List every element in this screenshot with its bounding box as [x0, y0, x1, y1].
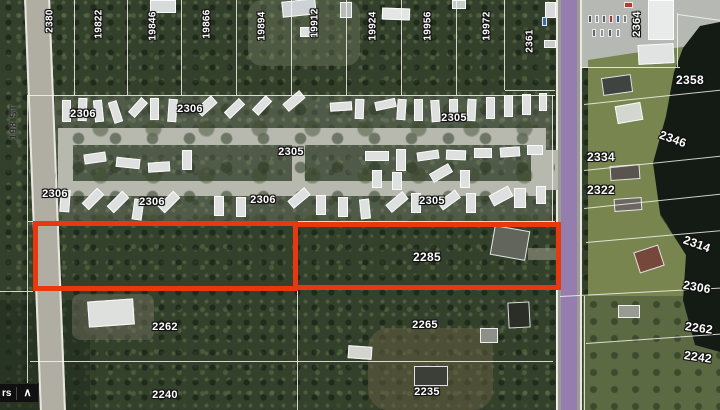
building-footprint [602, 15, 606, 23]
building-footprint [623, 15, 627, 23]
ui-divider [16, 387, 17, 400]
parcel-boundary-line [28, 95, 555, 96]
parcel-label: 2262 [152, 321, 178, 333]
building-footprint [480, 328, 498, 343]
parcel-label: 19924 [368, 11, 379, 40]
parcel-label: 2235 [414, 386, 440, 398]
parcel-label: 2305 [278, 146, 304, 158]
parcel-label: 19972 [482, 11, 493, 40]
parcel-label: 2265 [412, 319, 438, 331]
building-footprint [348, 345, 373, 360]
building-footprint [544, 40, 556, 48]
parcel-label: 19894 [257, 11, 268, 40]
building-footprint [87, 298, 135, 327]
building-footprint [148, 161, 171, 173]
building-footprint [545, 2, 556, 18]
parcel-label: 19846 [148, 11, 159, 40]
building-footprint [338, 197, 348, 217]
building-footprint [600, 29, 604, 37]
building-footprint [592, 29, 596, 37]
building-footprint [236, 197, 246, 217]
parcel-boundary-line [401, 0, 402, 95]
parcel-boundary-line [346, 0, 347, 95]
layers-bar: rs ∧ [0, 383, 39, 402]
parcel-label: 2306 [139, 196, 165, 208]
parcel-boundary-line [0, 291, 33, 292]
building-footprint [648, 0, 674, 40]
building-footprint [214, 196, 224, 216]
parcel-boundary-line [552, 95, 553, 222]
building-footprint [446, 150, 466, 161]
parcel-boundary-line [291, 0, 292, 95]
building-footprint [392, 172, 402, 190]
chevron-up-icon[interactable]: ∧ [19, 385, 35, 402]
building-footprint [466, 193, 476, 213]
building-footprint [460, 170, 470, 188]
building-footprint [355, 99, 365, 119]
building-footprint [618, 305, 640, 318]
parcel-label: 2306 [177, 103, 203, 115]
parcel-label: 2306 [70, 108, 96, 120]
building-footprint [624, 2, 633, 8]
building-footprint [382, 8, 410, 21]
building-footprint [486, 97, 495, 119]
parcel-label: 2285 [413, 250, 441, 264]
building-footprint [365, 151, 389, 161]
parcel-boundary-line [27, 95, 28, 385]
building-footprint [330, 101, 353, 112]
building-footprint [536, 186, 546, 204]
building-footprint [474, 148, 492, 158]
parcel-label: 2358 [676, 73, 704, 87]
parcel-boundary-line [74, 0, 75, 95]
building-footprint [504, 95, 513, 117]
building-footprint [588, 15, 592, 23]
parcel-label: 2305 [419, 195, 445, 207]
parcel-boundary-line [584, 296, 585, 410]
building-footprint [396, 99, 406, 121]
parcel-label: 19866 [202, 9, 213, 38]
parcel-label: 2306 [42, 188, 68, 200]
building-footprint [414, 99, 423, 121]
parcel-boundary-line [236, 0, 237, 95]
parcel-boundary-line [580, 67, 680, 68]
building-footprint [500, 146, 521, 157]
building-footprint [608, 29, 612, 37]
parcel-label: 2361 [525, 29, 536, 52]
parcel-boundary-line [297, 290, 298, 410]
parcel-label: 2364 [631, 11, 643, 37]
parcel-label: 19956 [423, 11, 434, 40]
parcel-label: 19822 [94, 9, 105, 38]
building-footprint [466, 99, 476, 121]
building-footprint [414, 366, 448, 386]
building-footprint [527, 145, 543, 155]
building-footprint [430, 100, 441, 123]
parcel-boundary-line [127, 0, 128, 95]
building-footprint [638, 43, 675, 65]
parcel-label: 2240 [152, 389, 178, 401]
building-footprint [150, 98, 159, 120]
street-label: 198 ST [9, 104, 20, 139]
layers-label-fragment[interactable]: rs [1, 388, 14, 399]
parcel-label: 2305 [441, 112, 467, 124]
building-footprint [595, 15, 599, 23]
building-footprint [522, 94, 531, 115]
road-highlight-overlay [561, 0, 577, 410]
parcel-label: 2306 [250, 194, 276, 206]
parcel-boundary-line [505, 90, 555, 91]
building-footprint [372, 170, 382, 188]
building-footprint [514, 188, 526, 208]
building-footprint [359, 199, 371, 220]
parcel-boundary-line [677, 13, 678, 67]
building-footprint [507, 301, 530, 328]
parcel-boundary-line [456, 0, 457, 95]
building-footprint [396, 149, 406, 171]
building-footprint [316, 195, 326, 215]
parcel-highlight-west [33, 221, 298, 291]
building-footprint [452, 0, 466, 9]
parcel-boundary-line [30, 361, 553, 362]
building-footprint [616, 15, 620, 23]
building-footprint [182, 150, 192, 170]
building-footprint [616, 29, 620, 37]
road-highlighted [556, 0, 582, 410]
building-footprint [542, 17, 547, 26]
parcel-label: 2380 [45, 9, 56, 32]
parcel-label: 2322 [587, 183, 615, 197]
building-footprint [609, 15, 613, 23]
map-viewport[interactable]: 198 ST rs ∧ 2380198221984619866198941991… [0, 0, 720, 410]
parcel-boundary-line [504, 0, 505, 90]
parcel-label: 19912 [310, 8, 321, 37]
parcel-label: 2334 [587, 150, 615, 164]
parcel-boundary-line [181, 0, 182, 95]
